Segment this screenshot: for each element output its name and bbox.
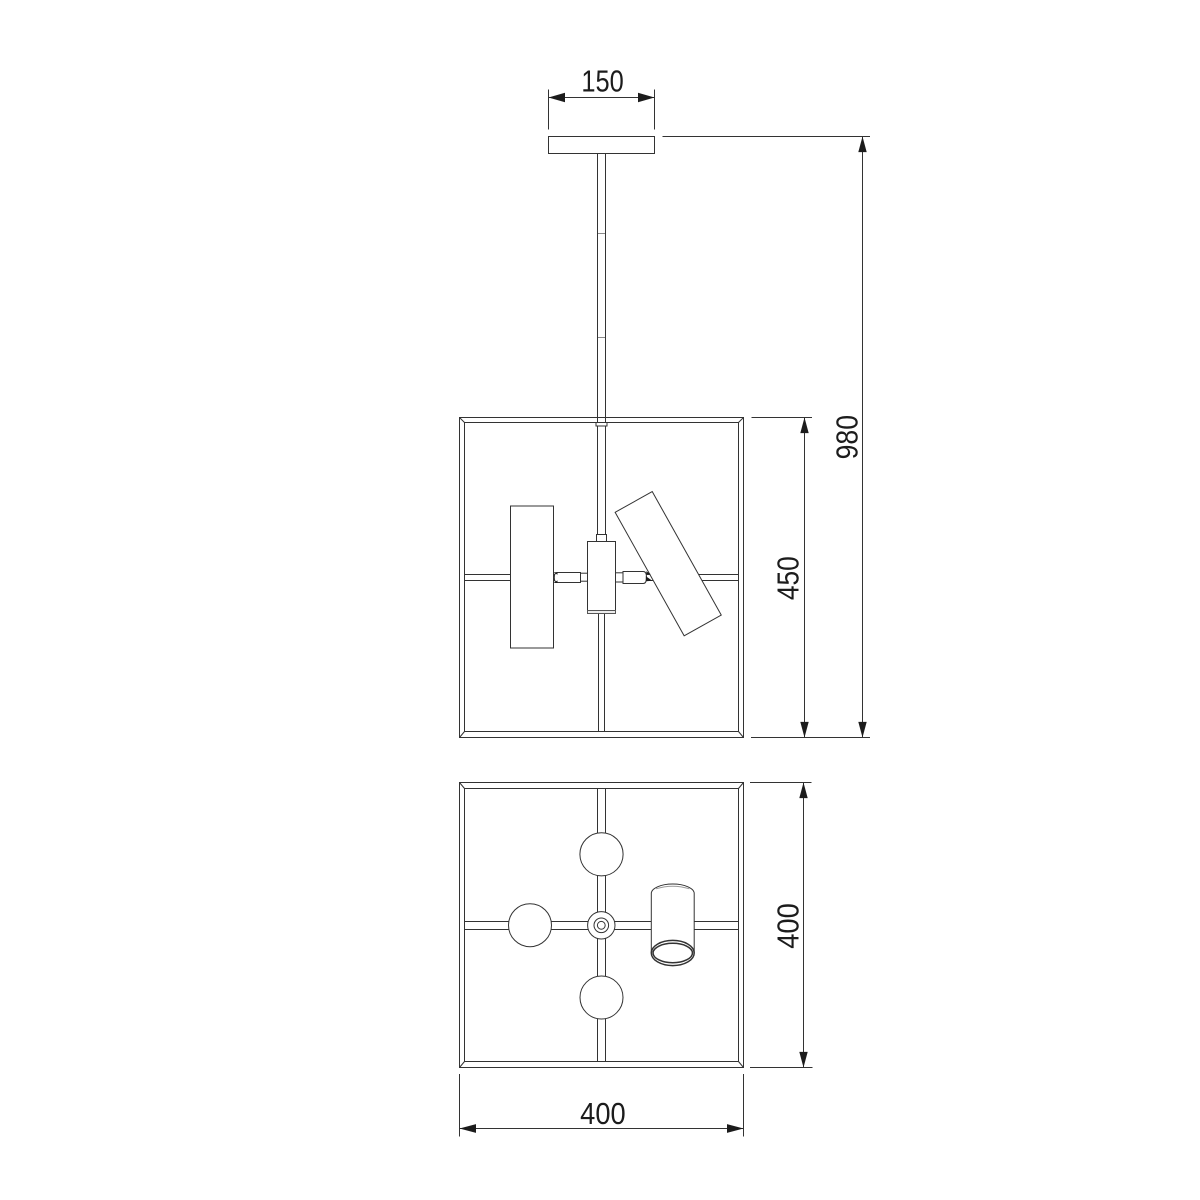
svg-text:450: 450 — [771, 556, 805, 600]
svg-text:980: 980 — [830, 415, 864, 459]
svg-text:150: 150 — [581, 64, 623, 99]
svg-text:400: 400 — [580, 1097, 626, 1131]
svg-text:400: 400 — [772, 903, 806, 949]
